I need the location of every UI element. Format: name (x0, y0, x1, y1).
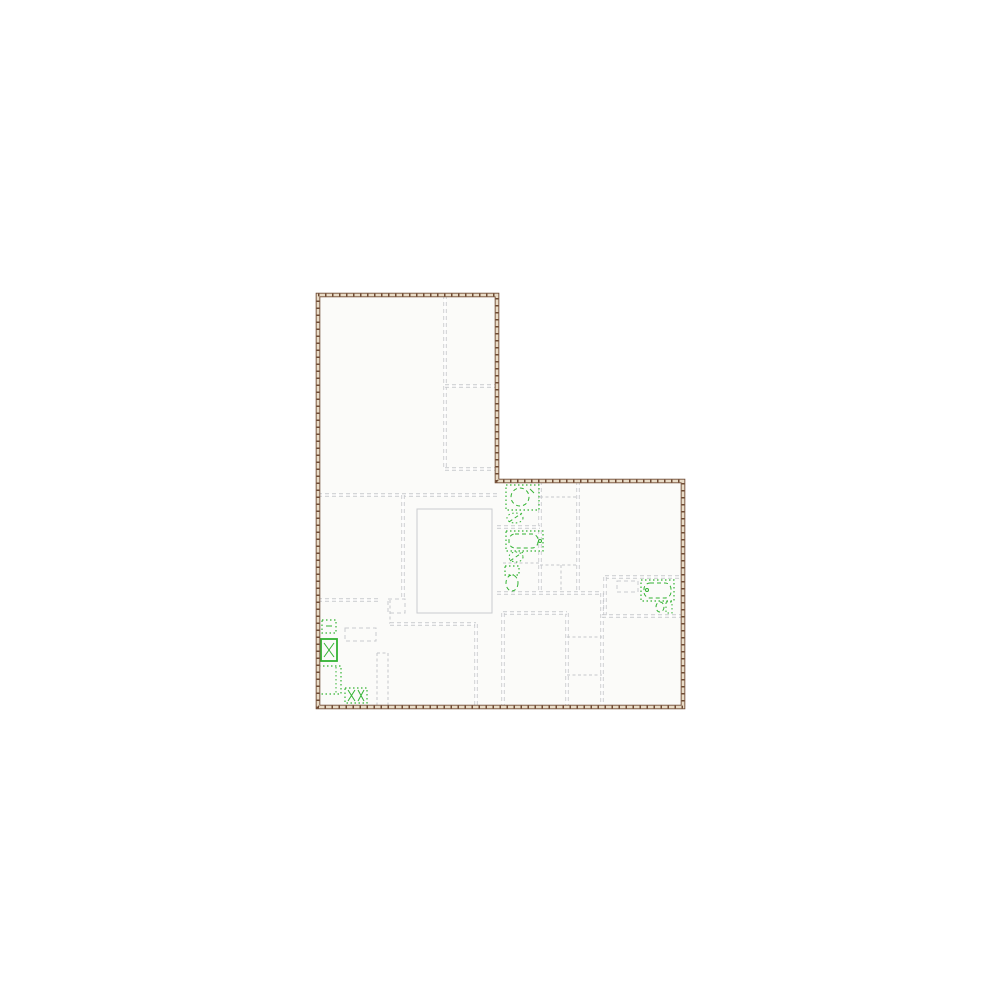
floor-area (318, 295, 683, 707)
floor-plan-page (0, 0, 1000, 1000)
floor-plan-drawing (0, 0, 1000, 1000)
